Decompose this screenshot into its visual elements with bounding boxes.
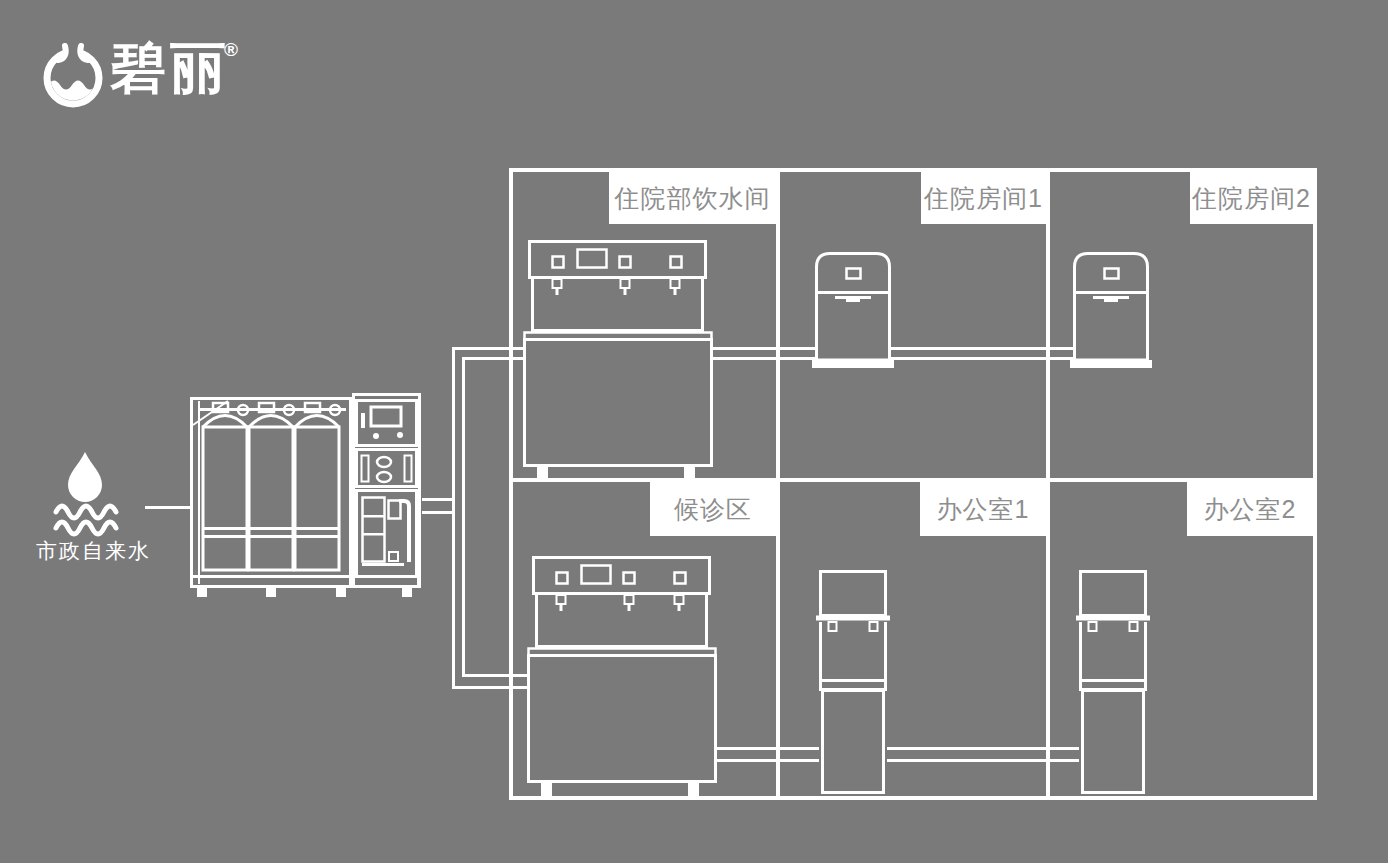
room-label-inpatient-room-1: 住院房间1 <box>921 172 1046 224</box>
water-treatment-machine <box>192 395 420 598</box>
room-label-office-2: 办公室2 <box>1187 482 1313 536</box>
room-label-inpatient-room-2: 住院房间2 <box>1190 172 1313 224</box>
room-label-waiting-area: 候诊区 <box>650 482 776 536</box>
dispenser-countertop-inpatient <box>525 242 712 481</box>
room-label-office-1: 办公室1 <box>920 482 1046 536</box>
dispenser-countertop-waiting-area <box>529 558 716 797</box>
dispenser-floor-office2 <box>1076 572 1150 793</box>
water-source-icon <box>56 452 116 534</box>
brand-name: 碧丽 <box>110 40 230 96</box>
pipe-riser <box>452 347 455 689</box>
diagram-canvas: 碧丽 ® 市政自来水 住院部饮水间 住院房间1 住院房间2 候诊区 办公室1 办… <box>0 0 1388 863</box>
dispenser-wall-room2 <box>1070 254 1152 369</box>
room-label-inpatient-water-room: 住院部饮水间 <box>609 172 776 224</box>
registered-trademark-symbol: ® <box>224 40 238 59</box>
dispenser-wall-room1 <box>812 254 894 369</box>
source-feed-pipe <box>145 506 191 509</box>
dispenser-floor-office1 <box>816 572 890 793</box>
brand-logo-icon <box>46 43 100 104</box>
water-system-diagram <box>0 0 1388 863</box>
water-source-label: 市政自来水 <box>36 540 151 561</box>
